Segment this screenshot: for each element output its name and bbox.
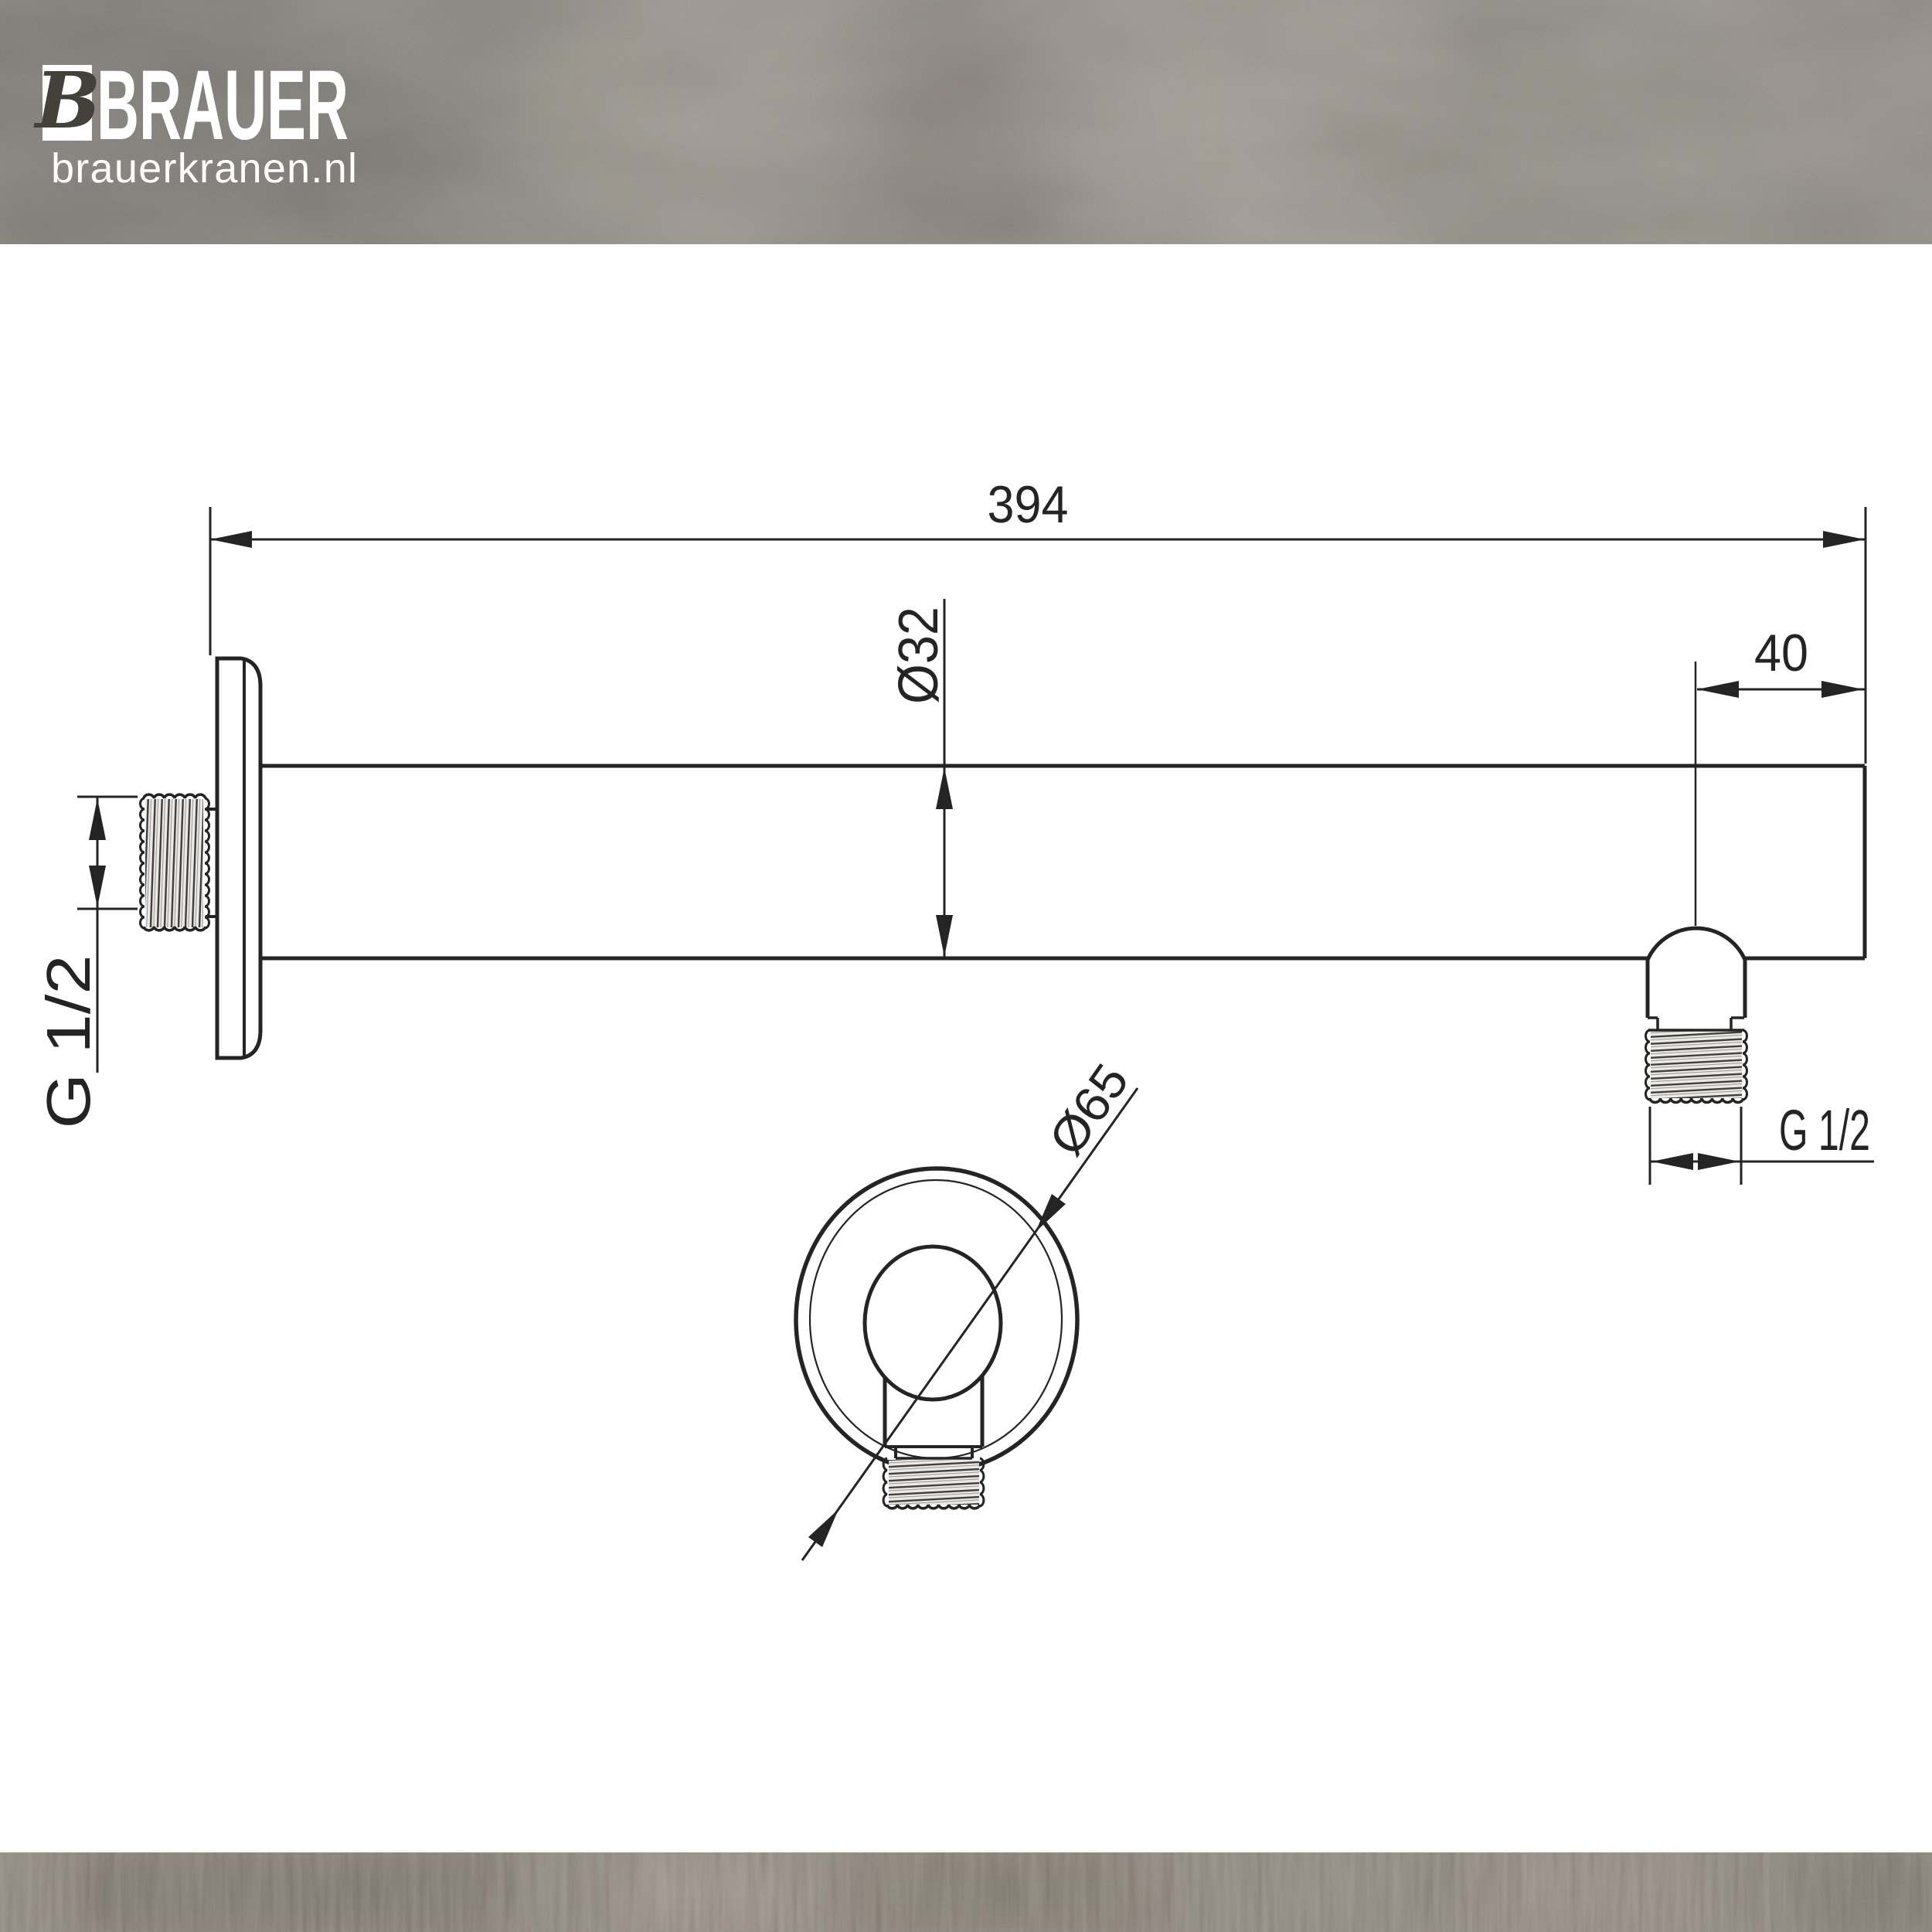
brauer-logo: B BRAUER brauerkranen.nl (33, 50, 357, 192)
dim-g12-left-label: G 1/2 (34, 955, 103, 1129)
brauer-logo-monogram: B (33, 55, 101, 146)
footer-band (0, 1847, 1932, 1932)
wall-flange-side (217, 658, 260, 1058)
technical-drawing-sheet: B BRAUER brauerkranen.nl (0, 0, 1932, 1932)
dim-394-label: 394 (988, 475, 1069, 534)
dim-40-label: 40 (1754, 624, 1808, 682)
dim-g12-right-label: G 1/2 (1779, 1098, 1870, 1162)
page: B BRAUER brauerkranen.nl (0, 0, 1932, 1932)
brand-name: BRAUER (97, 50, 349, 161)
footer-band-grain (0, 1852, 1932, 1932)
dim-o32-label: Ø32 (888, 607, 950, 704)
brand-website: brauerkranen.nl (51, 145, 357, 192)
front-thread (883, 1458, 984, 1509)
paper-background (0, 0, 1932, 1932)
outlet-thread-side (1646, 1030, 1747, 1103)
